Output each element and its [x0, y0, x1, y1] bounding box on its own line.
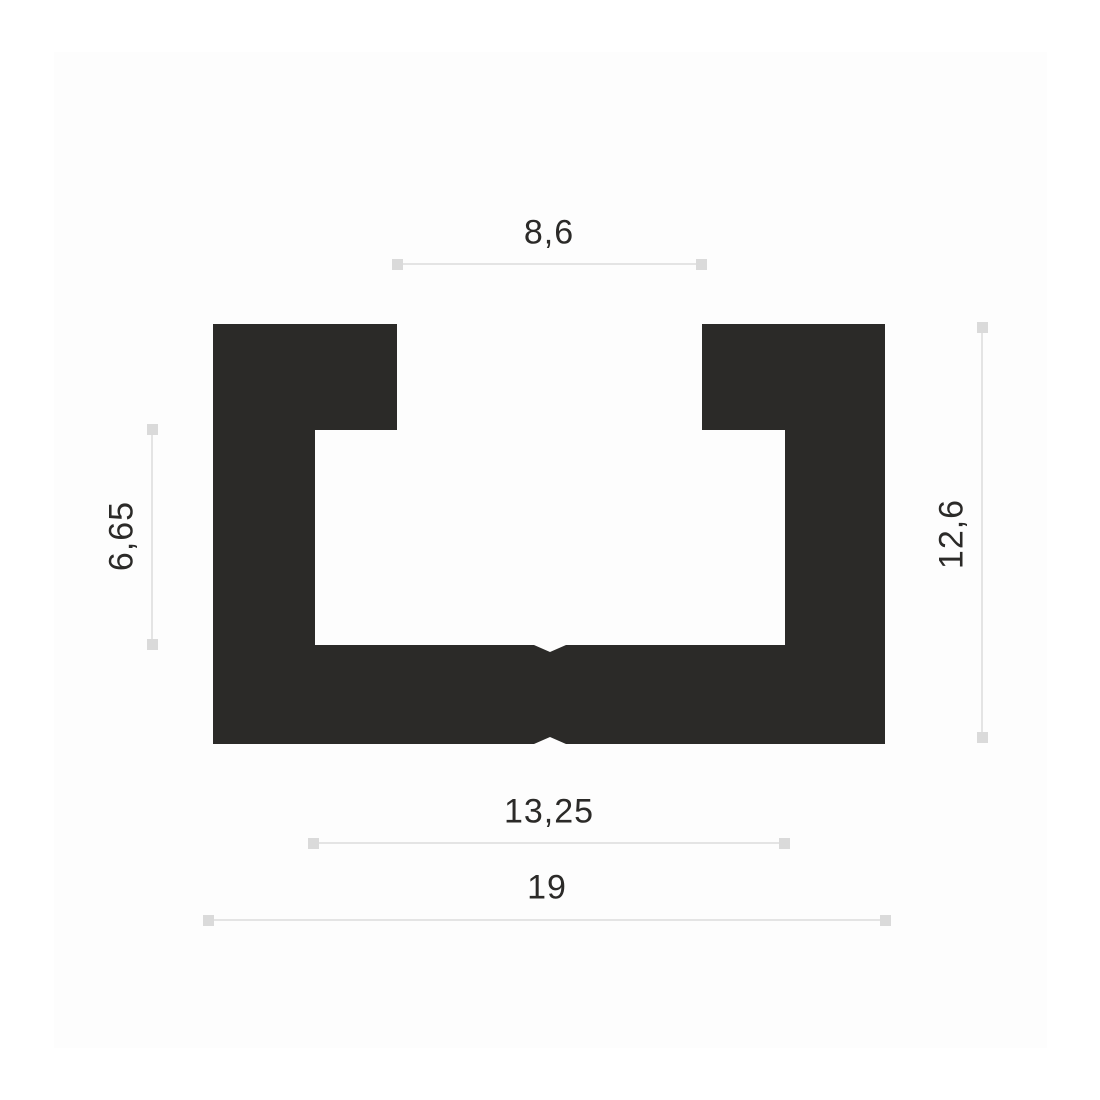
dimension-label: 13,25	[504, 793, 594, 832]
dimension-endpoint-left	[392, 259, 403, 270]
dimension-label: 19	[527, 869, 567, 908]
dimension-endpoint-left	[203, 915, 214, 926]
dimension-endpoint-right	[779, 838, 790, 849]
dimension-line	[208, 919, 885, 921]
dimension-endpoint-top	[147, 424, 158, 435]
dimension-line	[313, 842, 784, 844]
dimension-label: 12,6	[933, 499, 972, 569]
dimension-endpoint-top	[977, 322, 988, 333]
dimension-label: 8,6	[524, 214, 574, 253]
c-channel-profile-shape	[213, 324, 885, 744]
dimension-endpoint-bottom	[977, 732, 988, 743]
drawing-canvas: 8,6 6,65 12,6 13,25 19	[0, 0, 1100, 1100]
dimension-endpoint-bottom	[147, 639, 158, 650]
dimension-line	[397, 263, 701, 265]
dimension-endpoint-right	[696, 259, 707, 270]
dimension-line	[981, 327, 983, 737]
dimension-endpoint-left	[308, 838, 319, 849]
dimension-label: 6,65	[103, 501, 142, 571]
dimension-endpoint-right	[880, 915, 891, 926]
dimension-line	[151, 429, 153, 644]
